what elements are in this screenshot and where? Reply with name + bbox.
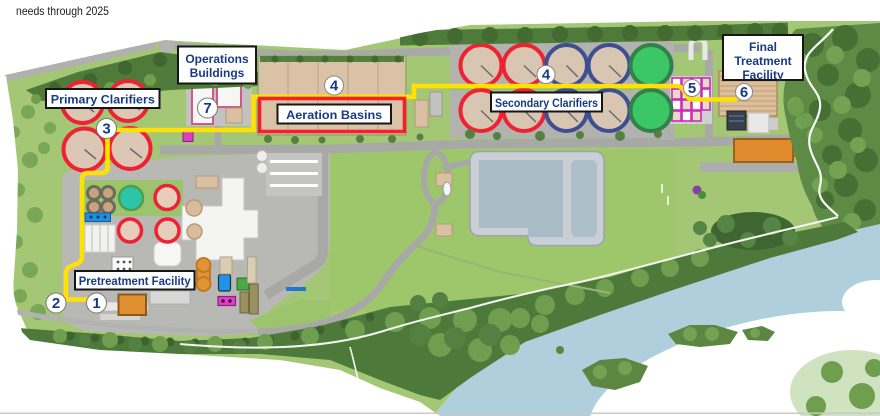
svg-text:7: 7 xyxy=(203,100,211,117)
svg-text:Final: Final xyxy=(749,40,777,54)
svg-text:Facility: Facility xyxy=(742,68,784,82)
svg-text:Pretreatment Facility: Pretreatment Facility xyxy=(79,274,191,288)
svg-text:Secondary Clarifiers: Secondary Clarifiers xyxy=(495,96,598,110)
svg-text:Primary Clarifiers: Primary Clarifiers xyxy=(51,92,155,106)
svg-text:2: 2 xyxy=(52,295,60,312)
svg-text:Aeration Basins: Aeration Basins xyxy=(286,108,382,122)
svg-text:4: 4 xyxy=(542,67,551,84)
svg-text:5: 5 xyxy=(688,80,696,97)
svg-text:6: 6 xyxy=(740,84,748,101)
svg-text:3: 3 xyxy=(102,121,110,138)
svg-text:4: 4 xyxy=(330,78,339,95)
svg-text:Treatment: Treatment xyxy=(734,54,791,68)
svg-text:1: 1 xyxy=(92,295,100,312)
svg-text:Buildings: Buildings xyxy=(190,66,245,80)
svg-text:Operations: Operations xyxy=(185,52,249,66)
svg-text:needs through 2025: needs through 2025 xyxy=(16,4,109,18)
